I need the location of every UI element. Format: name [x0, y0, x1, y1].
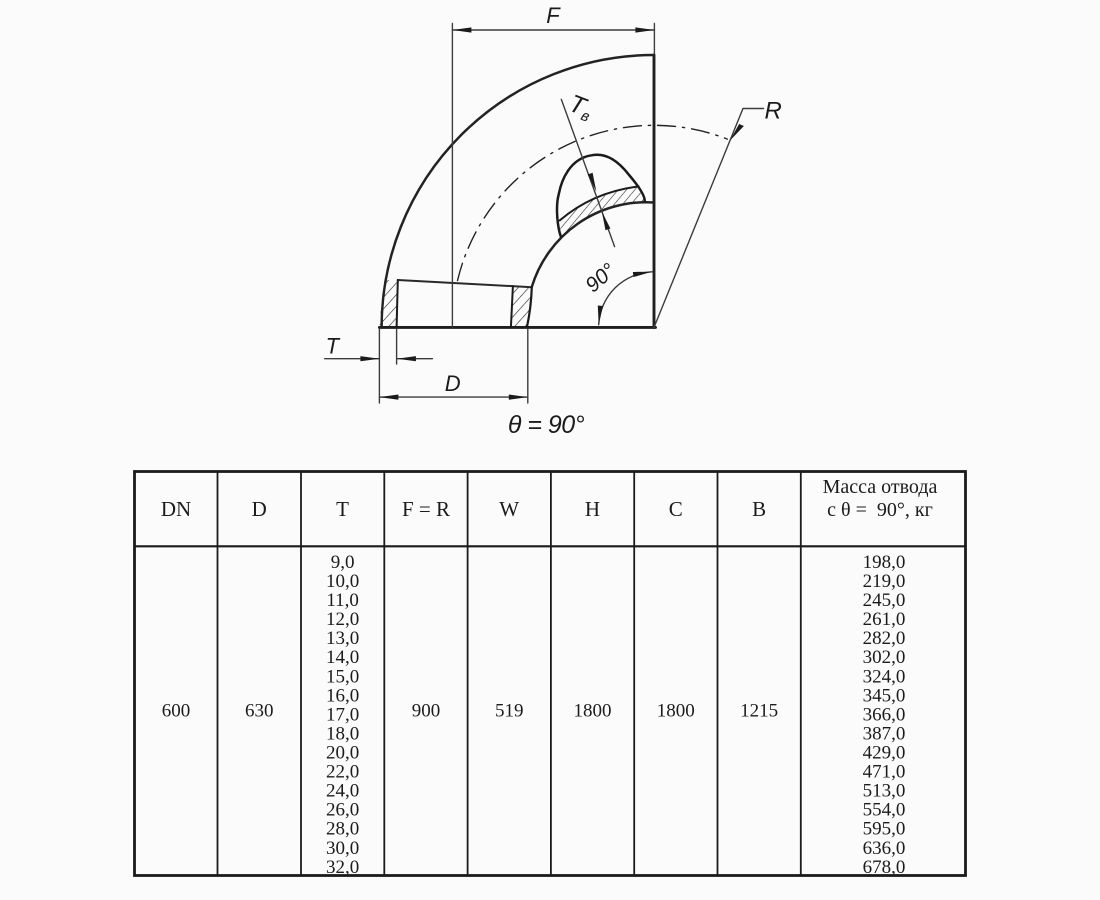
svg-text:282,0: 282,0: [863, 628, 906, 649]
svg-text:429,0: 429,0: [863, 743, 906, 764]
svg-text:10,0: 10,0: [326, 571, 359, 592]
svg-text:26,0: 26,0: [326, 800, 359, 821]
svg-text:Масса отвода: Масса отвода: [823, 476, 938, 498]
svg-text:11,0: 11,0: [326, 590, 359, 611]
svg-text:H: H: [585, 497, 600, 521]
svg-text:B: B: [752, 497, 766, 521]
svg-text:678,0: 678,0: [863, 857, 906, 878]
svg-text:F = R: F = R: [402, 497, 450, 521]
svg-text:13,0: 13,0: [326, 628, 359, 649]
svg-text:1800: 1800: [574, 701, 612, 722]
svg-text:с θ = 90°, кг: с θ = 90°, кг: [827, 499, 933, 521]
svg-text:D: D: [252, 497, 267, 521]
svg-text:D: D: [445, 371, 461, 396]
svg-text:θ = 90°: θ = 90°: [508, 411, 585, 439]
svg-text:519: 519: [495, 701, 524, 722]
svg-text:18,0: 18,0: [326, 724, 359, 745]
svg-text:900: 900: [412, 701, 441, 722]
svg-text:600: 600: [162, 701, 191, 722]
svg-text:12,0: 12,0: [326, 609, 359, 630]
svg-text:513,0: 513,0: [863, 781, 906, 802]
svg-text:198,0: 198,0: [863, 552, 906, 573]
svg-text:15,0: 15,0: [326, 666, 359, 687]
svg-text:32,0: 32,0: [326, 857, 359, 878]
svg-text:16,0: 16,0: [326, 685, 359, 706]
svg-text:17,0: 17,0: [326, 704, 359, 725]
svg-text:261,0: 261,0: [863, 609, 906, 630]
svg-text:219,0: 219,0: [863, 571, 906, 592]
svg-text:1800: 1800: [657, 701, 695, 722]
svg-text:387,0: 387,0: [863, 724, 906, 745]
svg-text:30,0: 30,0: [326, 838, 359, 859]
svg-text:T: T: [336, 497, 349, 521]
svg-text:T: T: [326, 334, 341, 359]
svg-text:20,0: 20,0: [326, 743, 359, 764]
svg-text:302,0: 302,0: [863, 647, 906, 668]
svg-text:24,0: 24,0: [326, 781, 359, 802]
svg-text:595,0: 595,0: [863, 819, 906, 840]
svg-text:636,0: 636,0: [863, 838, 906, 859]
svg-text:630: 630: [245, 701, 274, 722]
svg-text:471,0: 471,0: [863, 762, 906, 783]
svg-text:F: F: [546, 3, 561, 28]
svg-text:366,0: 366,0: [863, 704, 906, 725]
svg-text:22,0: 22,0: [326, 762, 359, 783]
svg-text:1215: 1215: [740, 701, 778, 722]
svg-text:345,0: 345,0: [863, 685, 906, 706]
svg-text:9,0: 9,0: [331, 552, 355, 573]
svg-text:14,0: 14,0: [326, 647, 359, 668]
svg-text:C: C: [669, 497, 683, 521]
svg-text:324,0: 324,0: [863, 666, 906, 687]
svg-text:554,0: 554,0: [863, 800, 906, 821]
svg-text:R: R: [765, 98, 782, 125]
svg-text:28,0: 28,0: [326, 819, 359, 840]
svg-text:245,0: 245,0: [863, 590, 906, 611]
svg-text:W: W: [499, 497, 519, 521]
svg-text:DN: DN: [161, 497, 191, 521]
